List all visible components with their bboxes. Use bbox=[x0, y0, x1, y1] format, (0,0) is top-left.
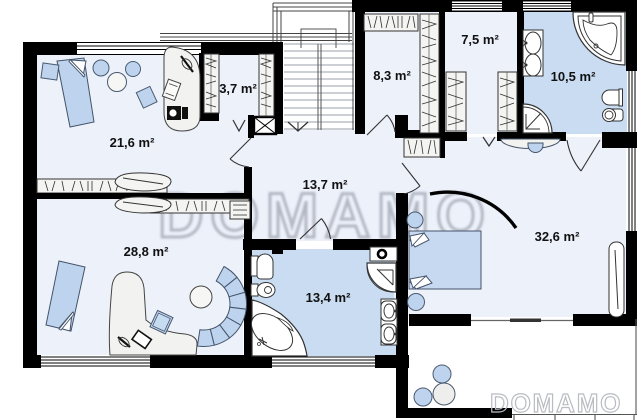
svg-text:10,5 m²: 10,5 m² bbox=[551, 69, 596, 84]
svg-text:13,7 m²: 13,7 m² bbox=[303, 177, 348, 192]
svg-text:8,3 m²: 8,3 m² bbox=[373, 68, 411, 83]
svg-text:DOMAMO: DOMAMO bbox=[490, 388, 625, 418]
svg-text:28,8 m²: 28,8 m² bbox=[124, 244, 169, 259]
svg-text:13,4 m²: 13,4 m² bbox=[306, 290, 351, 305]
svg-text:7,5 m²: 7,5 m² bbox=[461, 32, 499, 47]
svg-text:32,6 m²: 32,6 m² bbox=[535, 229, 580, 244]
svg-text:3,7 m²: 3,7 m² bbox=[219, 81, 257, 96]
svg-text:21,6 m²: 21,6 m² bbox=[110, 135, 155, 150]
